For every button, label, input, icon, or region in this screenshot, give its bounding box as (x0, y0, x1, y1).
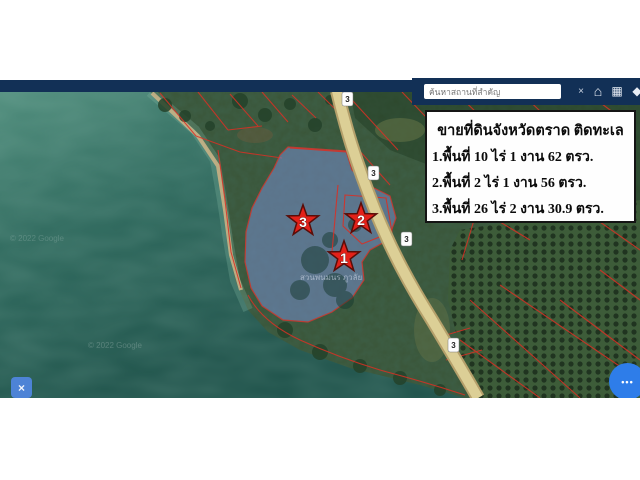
info-line-2: 2.พื้นที่ 2 ไร่ 1 งาน 56 ตรว. (432, 175, 634, 194)
clear-search-button[interactable]: × (572, 81, 590, 101)
search-panel: × ⌂ ▦ ◆ (412, 78, 640, 105)
route-shield-label: 3 (371, 169, 376, 178)
info-line-1: 1.พื้นที่ 10 ไร่ 1 งาน 62 ตรว. (432, 149, 634, 168)
info-line-3: 3.พื้นที่ 26 ไร่ 2 งาน 30.9 ตรว. (432, 201, 634, 220)
grid-icon[interactable]: ▦ (608, 81, 626, 101)
route-shield-label: 3 (404, 235, 409, 244)
home-icon[interactable]: ⌂ (589, 81, 607, 101)
search-input[interactable] (424, 84, 561, 99)
map-place-label: สวนพนมนร ภูวลัย (300, 273, 362, 283)
layers-icon[interactable]: ◆ (628, 81, 640, 101)
star-marker-1-label: 1 (340, 250, 348, 266)
draw-tool-button[interactable]: × (11, 377, 32, 398)
land-sale-info-box: ขายที่ดินจังหวัดตราด ติดทะเล 1.พื้นที่ 1… (425, 110, 636, 223)
draw-tool-icon: × (18, 381, 25, 395)
chat-bubble-button[interactable]: ••• (609, 363, 640, 398)
ellipsis-icon: ••• (621, 377, 633, 387)
route-shield-label: 3 (451, 341, 456, 350)
star-marker-3-label: 3 (299, 214, 307, 230)
route-shield-label: 3 (345, 95, 350, 104)
google-watermark: © 2022 Google (10, 234, 64, 243)
star-marker-2-label: 2 (357, 212, 365, 228)
page: 3 3 3 3 สวนพนมนร ภูวลัย © 2022 Google © … (0, 0, 640, 480)
info-title: ขายที่ดินจังหวัดตราด ติดทะเล (427, 119, 634, 142)
google-watermark: © 2022 Google (88, 341, 142, 350)
